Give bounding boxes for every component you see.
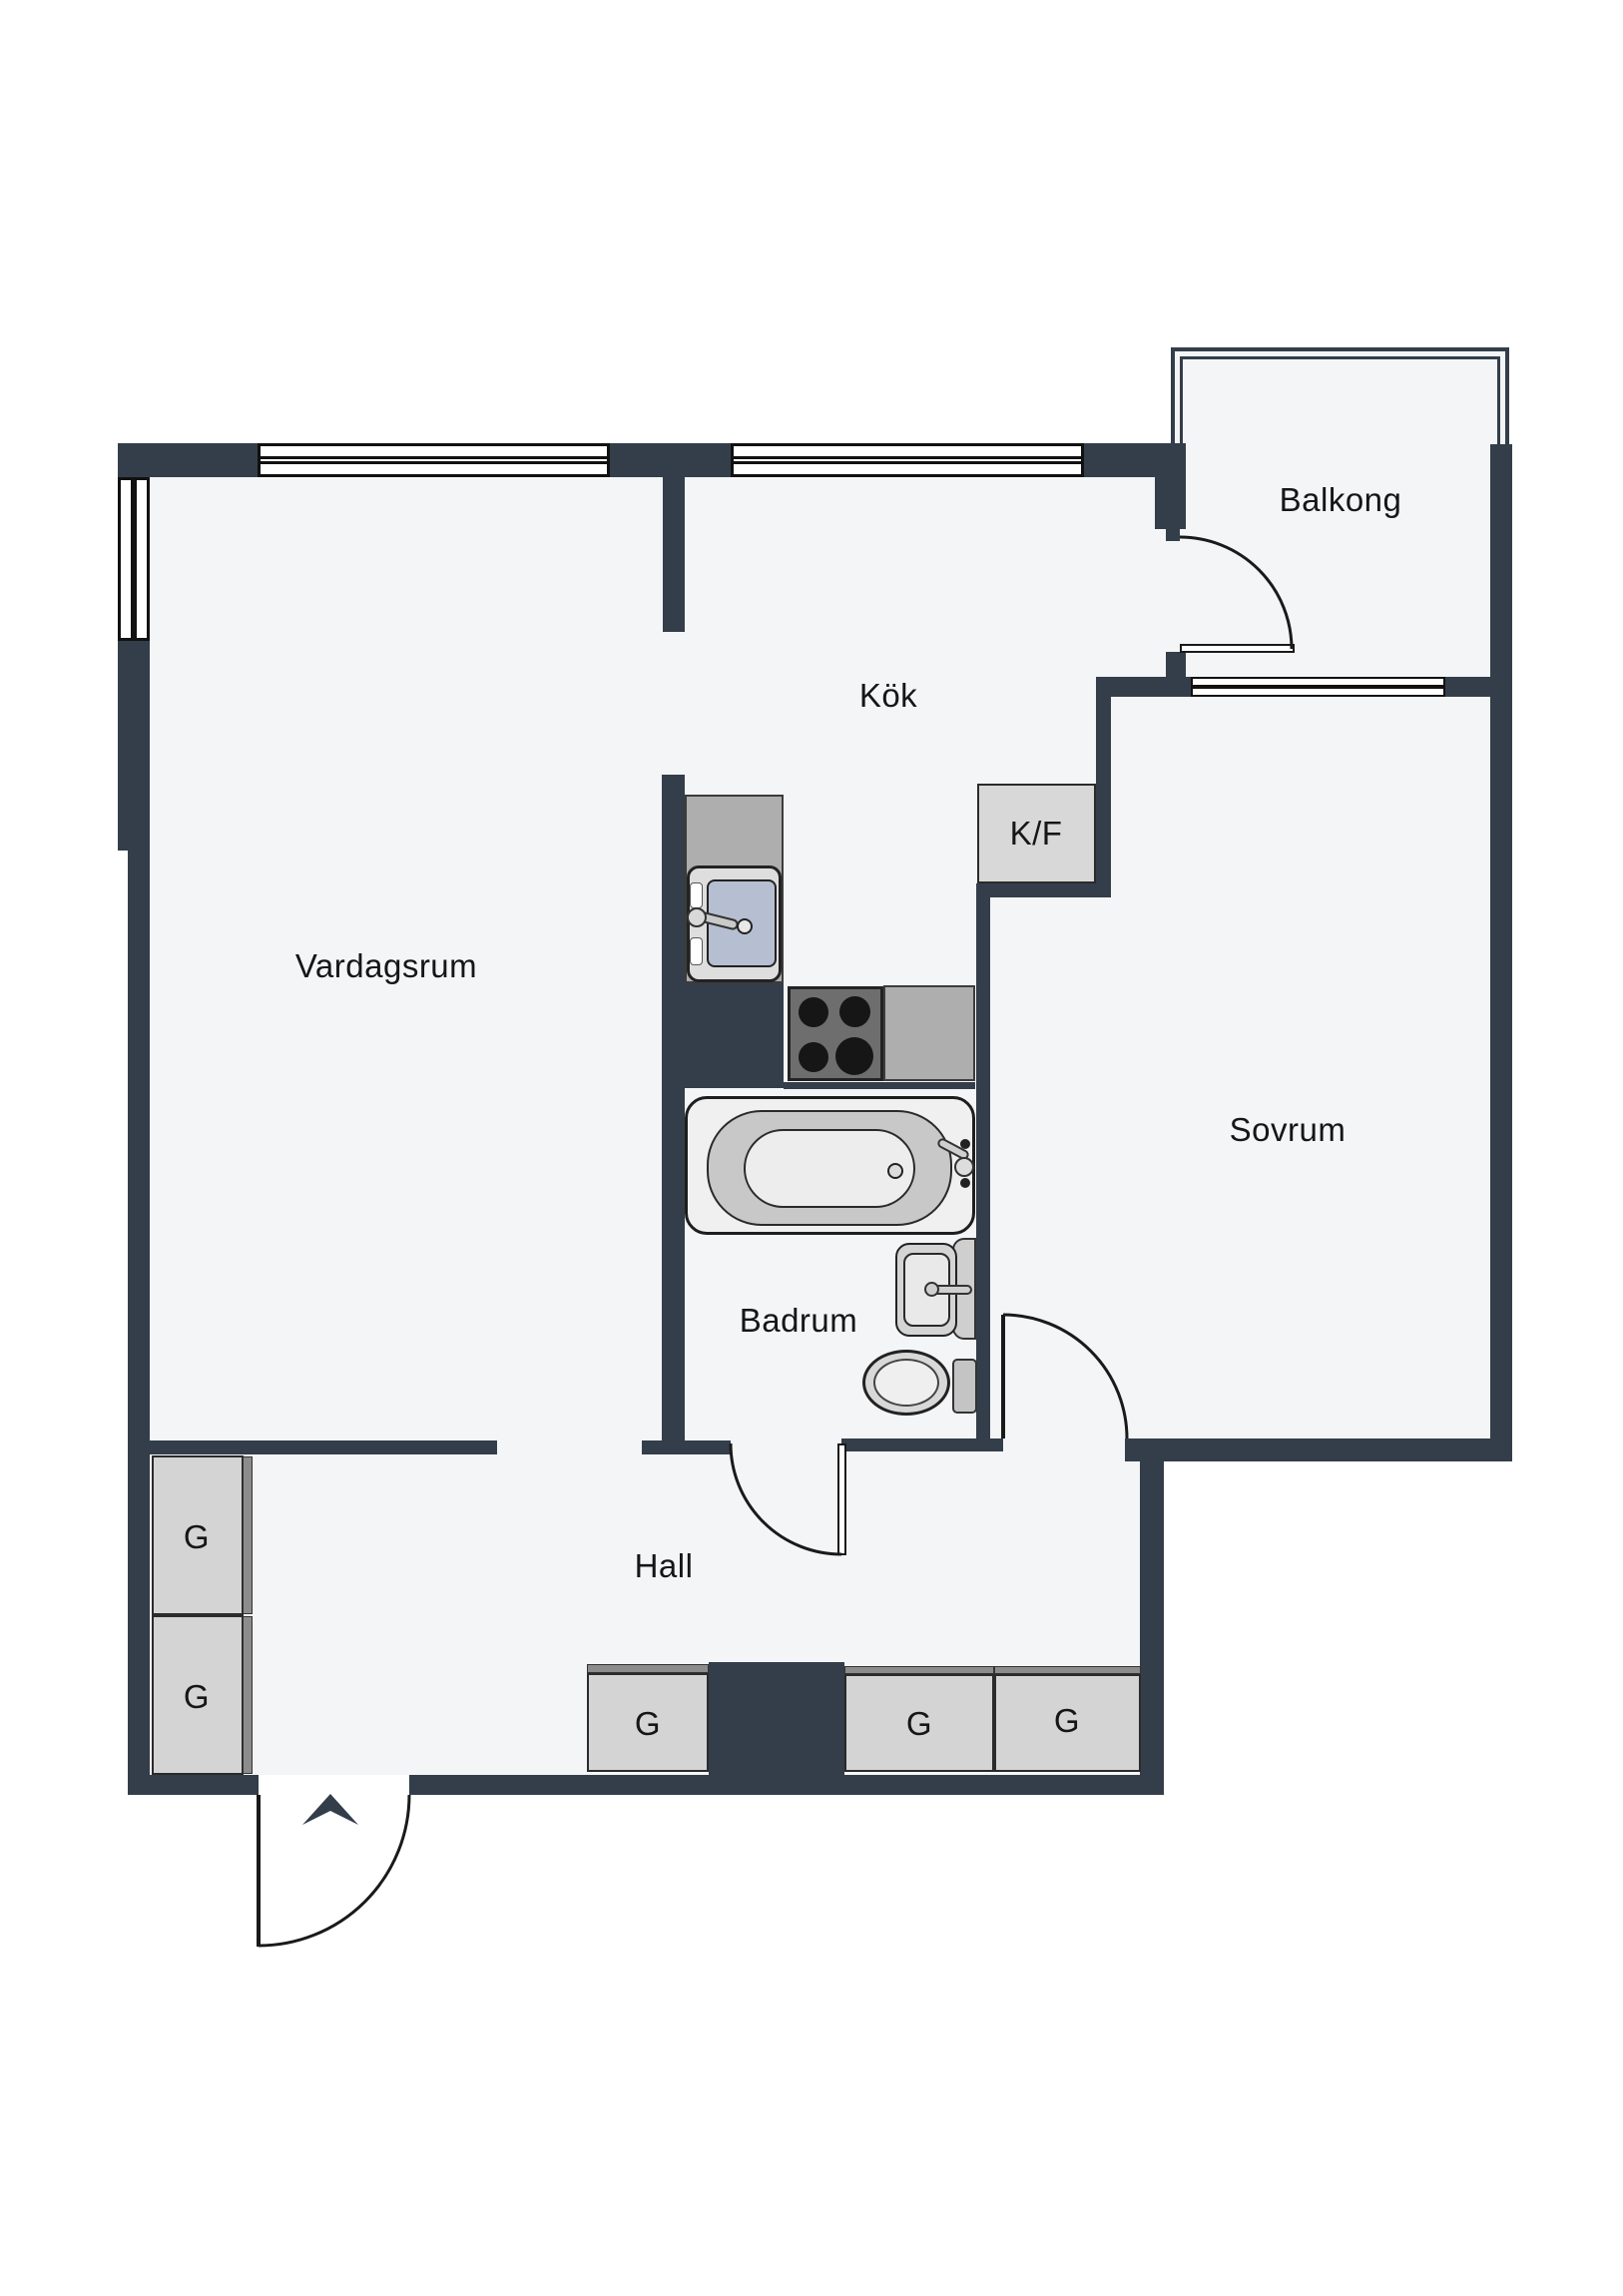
wall-core-west — [662, 775, 685, 1454]
wall-bottom-left — [128, 1775, 259, 1795]
fixture-label-g: G — [635, 1705, 661, 1743]
wall-bedroom-south — [1125, 1438, 1512, 1461]
kitchen-counter-east — [883, 985, 975, 1081]
wall-bathroom-south-left — [642, 1440, 731, 1454]
fixture-label-g: G — [1054, 1702, 1080, 1740]
balcony-railing-inner — [1180, 356, 1500, 444]
stove-burner — [799, 1042, 828, 1072]
wall-under-counter — [784, 1082, 975, 1089]
wall-core-east — [976, 883, 990, 1438]
sink-drain — [737, 918, 753, 934]
wall-top-mid — [610, 443, 731, 477]
room-label-sovrum: Sovrum — [1230, 1111, 1347, 1149]
wall-hall-east — [1140, 1450, 1164, 1795]
fixture-label-kf: K/F — [1010, 815, 1063, 853]
wall-bathroom-south-right — [841, 1438, 1003, 1451]
bathtub-faucet-base — [954, 1157, 974, 1177]
wall-balcony-door-stub — [1166, 652, 1186, 697]
bathtub-drain — [887, 1163, 903, 1179]
wall-kitchen-east-upper — [1096, 677, 1111, 897]
entry-door-leaf — [257, 1795, 261, 1947]
wardrobe-door-strip — [243, 1456, 253, 1614]
wardrobe-door-strip — [844, 1666, 994, 1674]
wall-under-fridge — [976, 883, 1111, 897]
room-label-badrum: Badrum — [740, 1302, 858, 1340]
bedroom-door-leaf — [1001, 1315, 1005, 1438]
sink-drainer-slot — [690, 937, 703, 965]
room-label-balkong: Balkong — [1280, 481, 1402, 519]
wardrobe-door-strip — [587, 1664, 709, 1673]
stove-burner — [839, 996, 870, 1027]
washbasin-faucet-knob — [924, 1282, 939, 1297]
wall-right-outer — [1490, 444, 1512, 1461]
bathtub-tap-dot — [960, 1178, 970, 1188]
bathtub-tap-dot — [960, 1139, 970, 1149]
stove-burner — [835, 1037, 873, 1075]
wall-top-left — [118, 443, 258, 477]
sink-drainer-slot — [690, 882, 703, 908]
fixture-label-g: G — [906, 1705, 932, 1743]
floor-plan: Vardagsrum Kök Balkong Sovrum Badrum Hal… — [0, 0, 1623, 2296]
toilet-cistern — [952, 1359, 977, 1414]
room-label-hall: Hall — [635, 1547, 694, 1585]
fixture-label-g: G — [184, 1518, 210, 1556]
wall-top-right — [1084, 443, 1186, 477]
wall-balcony-pier-foot — [1166, 529, 1180, 541]
wall-balcony-pier — [1155, 477, 1186, 529]
wardrobe-door-strip — [243, 1616, 253, 1774]
bathroom-door-leaf — [837, 1443, 846, 1555]
fixture-label-g: G — [184, 1678, 210, 1716]
wall-plumbing-block — [662, 983, 784, 1088]
window-livingroom-icon — [258, 443, 610, 477]
window-kitchen-icon — [731, 443, 1084, 477]
window-livingroom-west-icon — [118, 477, 150, 641]
window-bedroom-icon — [1191, 677, 1445, 697]
room-label-kok: Kök — [859, 677, 917, 715]
wall-left-upper — [118, 639, 150, 851]
wardrobe-door-strip — [994, 1666, 1141, 1674]
stove-burner — [799, 997, 828, 1027]
toilet-bowl-inner — [873, 1359, 939, 1407]
room-label-vardagsrum: Vardagsrum — [295, 947, 477, 985]
entry-door-arc — [259, 1795, 409, 1946]
sink-faucet-base — [687, 907, 707, 927]
wall-left-lower — [128, 851, 150, 1795]
balcony-door-leaf — [1180, 644, 1295, 653]
wall-hall-block — [709, 1662, 844, 1795]
wall-livingroom-hall-divider — [150, 1440, 497, 1454]
entry-arrow-icon — [302, 1794, 358, 1825]
wall-kitchen-stub-top — [663, 477, 685, 632]
